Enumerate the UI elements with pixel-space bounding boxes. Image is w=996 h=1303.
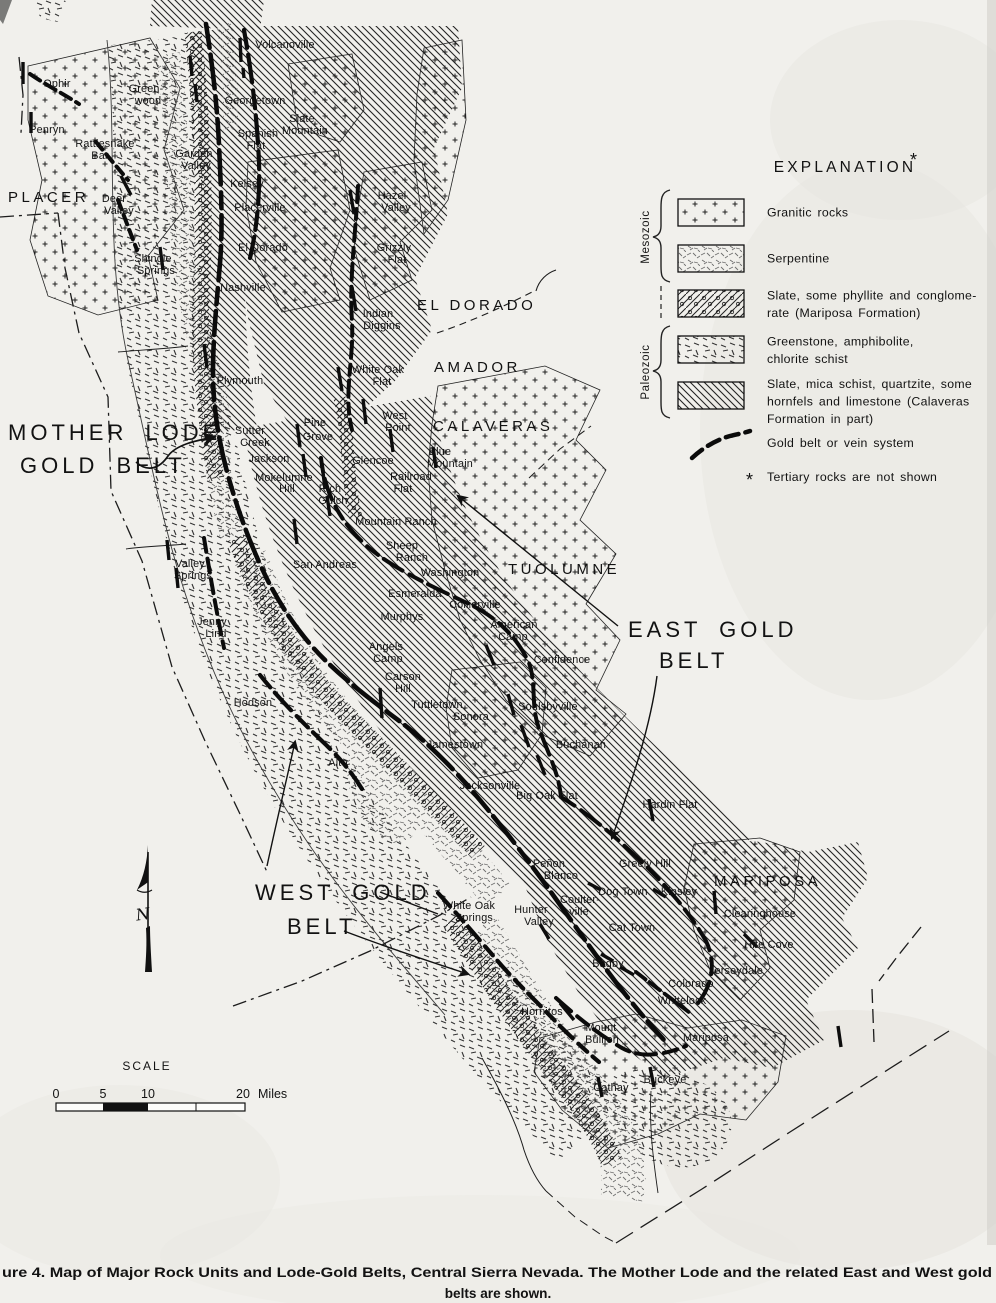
town-label: Tuttletown <box>411 699 462 711</box>
serpentine-top-lens <box>224 24 231 130</box>
town-label: Buchanan <box>556 739 606 751</box>
town-label: Blanco <box>544 870 578 882</box>
town-label: Hill <box>279 483 295 495</box>
town-label: Rattlesnake <box>75 138 134 150</box>
scanned-map-page: VolcanovilleOphirPenrynGreen-woodGeorget… <box>0 0 996 1303</box>
town-label: Carson <box>385 671 421 683</box>
town-label: Hunter <box>514 904 548 916</box>
county-label: TUOLUMNE <box>508 561 620 578</box>
town-label: Plymouth <box>217 375 264 387</box>
era-labels: MesozoicPaleozoic <box>640 210 652 399</box>
town-label: El Dorado <box>238 242 288 254</box>
scale-title: SCALE <box>122 1059 171 1073</box>
legend-swatch-green <box>678 336 744 363</box>
town-label: Coulter- <box>560 894 600 906</box>
town-label: Diggins <box>363 320 401 332</box>
town-label: Soulsbyville <box>518 701 577 713</box>
town-label: Mountain Ranch <box>355 516 436 528</box>
scale-tick-label: 5 <box>100 1087 107 1101</box>
legend-item-label: Serpentine <box>767 252 829 266</box>
town-label: Sutter <box>235 425 265 437</box>
era-brace-paleozoic <box>653 326 670 418</box>
legend-gold-belt-label: Gold belt or vein system <box>767 436 914 450</box>
town-label: Clearinghouse <box>724 908 796 920</box>
town-label: White Oak <box>352 364 405 376</box>
legend-title: EXPLANATION <box>774 159 917 176</box>
legend-item-label: rate (Mariposa Formation) <box>767 306 921 320</box>
legend-item-label: Formation in part) <box>767 412 873 426</box>
town-label: Bullion <box>585 1034 619 1046</box>
town-label: Collierville <box>449 599 501 611</box>
town-label: West <box>382 410 407 422</box>
town-label: Jerseydale <box>709 965 763 977</box>
town-label: Buckeye <box>644 1074 687 1086</box>
west-gold-belt-label: BELT <box>287 914 356 939</box>
town-label: Valley <box>181 160 211 172</box>
town-label: Pine <box>304 417 326 429</box>
town-label: Greely Hill <box>619 858 671 870</box>
geologic-map-figure: VolcanovilleOphirPenrynGreen-woodGeorget… <box>0 0 996 1303</box>
town-label: Blue <box>429 446 451 458</box>
town-label: Springs <box>137 265 175 277</box>
county-label: CALAVERAS <box>433 418 553 435</box>
town-label: Creek <box>240 437 270 449</box>
mother-lode-gold-belt-label: MOTHER LODE <box>8 420 221 445</box>
town-label: Angels <box>369 641 404 653</box>
era-brace-mesozoic <box>653 190 670 282</box>
town-label: White Oak <box>443 900 496 912</box>
mother-lode-gold-belt-label: GOLD BELT <box>20 453 186 478</box>
town-label: American <box>490 619 537 631</box>
town-label: Grove <box>303 431 333 443</box>
town-label: Hardin Flat <box>642 799 697 811</box>
town-label: Sheep <box>386 540 418 552</box>
era-label: Paleozoic <box>640 344 652 399</box>
county-label: PLACER <box>8 189 89 206</box>
north-letter: N <box>134 904 152 925</box>
legend-item-label: Slate, mica schist, quartzite, some <box>767 377 972 391</box>
town-label: Cat Town <box>609 922 655 934</box>
town-label: ville <box>569 906 589 918</box>
legend-footnote: Tertiary rocks are not shown <box>767 470 937 484</box>
scale-bar-filled-segment <box>103 1103 148 1111</box>
scale-bar-outline <box>56 1103 245 1111</box>
scale-tick-label: 20 <box>236 1087 250 1101</box>
scale-tick-label: 10 <box>141 1087 155 1101</box>
town-label: Camp <box>373 653 403 665</box>
town-label: Nashville <box>220 282 266 294</box>
town-label: Valley <box>524 916 554 928</box>
town-label: San Andreas <box>293 559 357 571</box>
scale-unit: Miles <box>258 1087 287 1101</box>
town-label: Glencoe <box>352 455 394 467</box>
town-label: Valley <box>381 202 411 214</box>
north-arrow-tail <box>145 926 152 972</box>
east-gold-belt-label: EAST GOLD <box>628 617 798 642</box>
town-label: Ophir <box>43 78 71 90</box>
town-label: Dog Town <box>598 886 647 898</box>
town-label: Whitelock <box>658 995 707 1007</box>
town-label: Esmeralda <box>388 588 441 600</box>
map-fragment-topleft <box>36 0 66 22</box>
town-label: Georgetown <box>225 95 286 107</box>
town-label: Hite Cove <box>744 939 793 951</box>
town-label: Point <box>385 422 411 434</box>
town-label: Washington <box>421 567 480 579</box>
town-label: Indian <box>363 308 394 320</box>
town-label: Hornitos <box>521 1006 563 1018</box>
town-label: Green- <box>129 83 164 95</box>
legend-swatch-marip <box>678 290 744 317</box>
town-label: Grizzly <box>377 242 412 254</box>
boundary-hook-eldorado <box>536 270 556 291</box>
caption-line-2: belts are shown. <box>445 1286 552 1301</box>
town-label: Springs <box>174 570 212 582</box>
town-label: Jamestown <box>427 739 483 751</box>
town-label: wood <box>134 95 162 107</box>
town-label: Deer <box>102 193 126 205</box>
town-label: Springs <box>455 912 493 924</box>
town-label: Railroad <box>390 471 432 483</box>
legend-footnote-asterisk: * <box>746 470 753 490</box>
north-arrow-blade-curl <box>137 890 152 892</box>
legend-swatch-serp <box>678 245 744 272</box>
legend-item-label: Granitic rocks <box>767 206 848 220</box>
county-label: EL DORADO <box>417 297 536 314</box>
town-label: Sonora <box>453 711 489 723</box>
town-label: Bar <box>91 150 109 162</box>
town-label: Flat <box>388 254 407 266</box>
town-label: Valley <box>104 205 134 217</box>
town-label: Mountain <box>427 458 473 470</box>
town-label: Gulch <box>318 495 347 507</box>
town-label: Ranch <box>396 552 428 564</box>
legend-item-label: Greenstone, amphibolite, <box>767 335 914 349</box>
town-label: Bagby <box>592 958 624 970</box>
town-label: Penryn <box>29 124 64 136</box>
east-gold-belt-label: BELT <box>659 648 728 673</box>
caption-line-1: ure 4. Map of Major Rock Units and Lode-… <box>2 1265 992 1280</box>
town-label: Garden <box>175 148 212 160</box>
town-label: Placerville <box>234 202 285 214</box>
town-label: Confidence <box>534 654 591 666</box>
north-arrow: N <box>134 845 152 972</box>
legend-item-label: hornfels and limestone (Calaveras <box>767 395 970 409</box>
town-label: Alto <box>328 757 347 769</box>
town-label: Rich <box>319 483 341 495</box>
town-label: Shingle <box>134 253 171 265</box>
town-label: Kelsey <box>230 178 264 190</box>
town-label: Jenny <box>197 616 227 628</box>
town-label: Jacksonville <box>460 780 521 792</box>
town-label: Lind <box>205 628 226 640</box>
legend-swatch-cala <box>678 382 744 409</box>
county-label: MARIPOSA <box>714 873 821 890</box>
town-label: Cathay <box>593 1082 629 1094</box>
town-label: Mount <box>585 1022 616 1034</box>
legend-swatch-granitic <box>678 199 744 226</box>
town-label: Flat <box>373 376 392 388</box>
town-label: Hazel <box>378 190 407 202</box>
town-label: Colorado <box>668 978 713 990</box>
north-arrow-blade <box>137 845 148 890</box>
town-label: Mountain <box>282 125 328 137</box>
town-label: Hodson <box>234 697 272 709</box>
town-label: Big Oak Flat <box>516 790 578 802</box>
town-label: Spanish <box>238 128 278 140</box>
town-label: Peñon <box>533 858 565 870</box>
legend-item-label: chlorite schist <box>767 352 848 366</box>
town-label: Mariposa <box>683 1032 729 1044</box>
town-label: Flat <box>247 140 266 152</box>
county-label: AMADOR <box>434 359 521 376</box>
era-label: Mesozoic <box>640 210 652 263</box>
town-label: Slate <box>289 113 315 125</box>
town-label: Hill <box>395 683 411 695</box>
scale-tick-label: 0 <box>53 1087 60 1101</box>
town-label: Jackson <box>248 453 289 465</box>
town-label: Kinsley <box>661 886 698 898</box>
scale-bar: SCALE 051020 Miles <box>53 1059 288 1111</box>
legend-item-label: Slate, some phyllite and conglome- <box>767 289 977 303</box>
town-label: Valley <box>175 558 205 570</box>
town-label: Volcanoville <box>255 39 314 51</box>
town-label: Flat <box>394 483 413 495</box>
town-label: Murphys <box>381 611 424 623</box>
legend-title-asterisk: * <box>910 150 917 170</box>
town-label: Camp <box>498 631 528 643</box>
